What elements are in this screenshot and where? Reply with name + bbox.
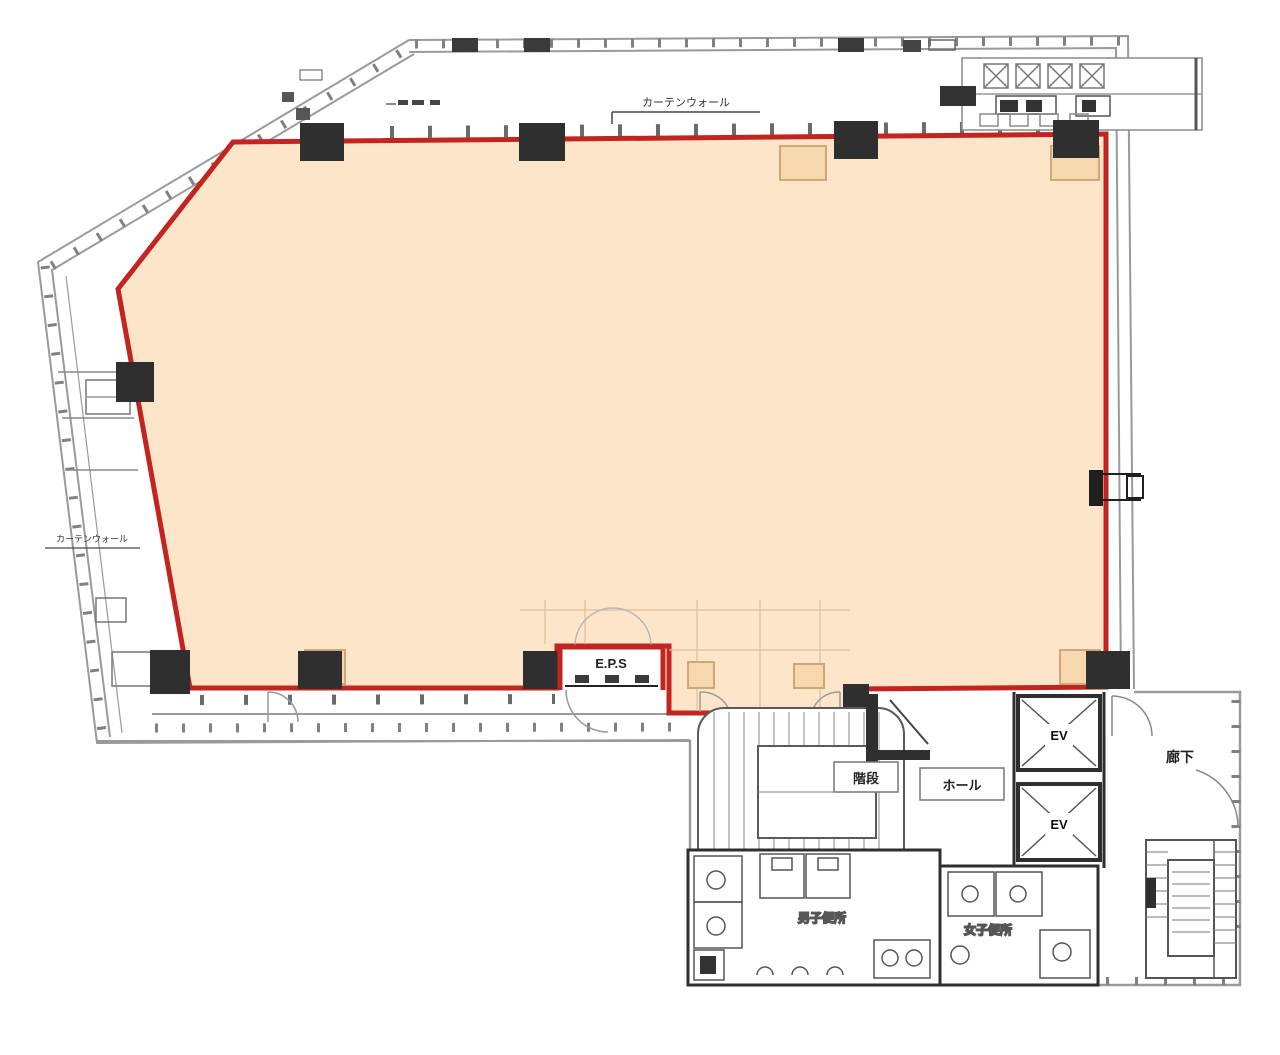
womens-toilet-room: 女子便所 bbox=[940, 866, 1098, 985]
curtain-wall-top-label: カーテンウォール bbox=[642, 96, 730, 109]
small-annotations bbox=[282, 70, 440, 120]
stairs-labelbox: 階段 bbox=[834, 762, 898, 792]
womens-toilet-label: 女子便所 bbox=[964, 922, 1012, 937]
leasable-area-highlight bbox=[118, 134, 1106, 713]
eps-label: E.P.S bbox=[595, 656, 627, 671]
floor-plan-drawing: E.P.S 階段 ホール bbox=[0, 0, 1280, 1055]
corridor-label: 廊下 bbox=[1166, 749, 1194, 765]
curtain-wall-note-top: カーテンウォール bbox=[612, 96, 760, 124]
top-right-bay bbox=[903, 40, 1202, 130]
eps-shaft: E.P.S bbox=[560, 647, 663, 732]
elevator-shaft-2: EV bbox=[1018, 784, 1100, 860]
external-stair bbox=[1146, 840, 1236, 978]
curtain-wall-note-left: カーテンウォール bbox=[45, 534, 140, 548]
shutter-detail bbox=[1089, 470, 1143, 506]
curtain-wall-left-label: カーテンウォール bbox=[56, 534, 128, 544]
stairs-label: 階段 bbox=[853, 771, 879, 786]
hall-labelbox: ホール bbox=[920, 768, 1004, 800]
mens-toilet-label: 男子便所 bbox=[798, 910, 846, 925]
mens-toilet-room: 男子便所 bbox=[688, 850, 940, 985]
hall-label: ホール bbox=[942, 778, 981, 793]
elevator-1-label: EV bbox=[1050, 728, 1068, 743]
floor-plan-page: E.P.S 階段 ホール bbox=[0, 0, 1280, 1055]
elevator-2-label: EV bbox=[1050, 817, 1068, 832]
corridor: 廊下 bbox=[1112, 696, 1238, 828]
elevator-shaft-1: EV bbox=[1018, 696, 1100, 770]
